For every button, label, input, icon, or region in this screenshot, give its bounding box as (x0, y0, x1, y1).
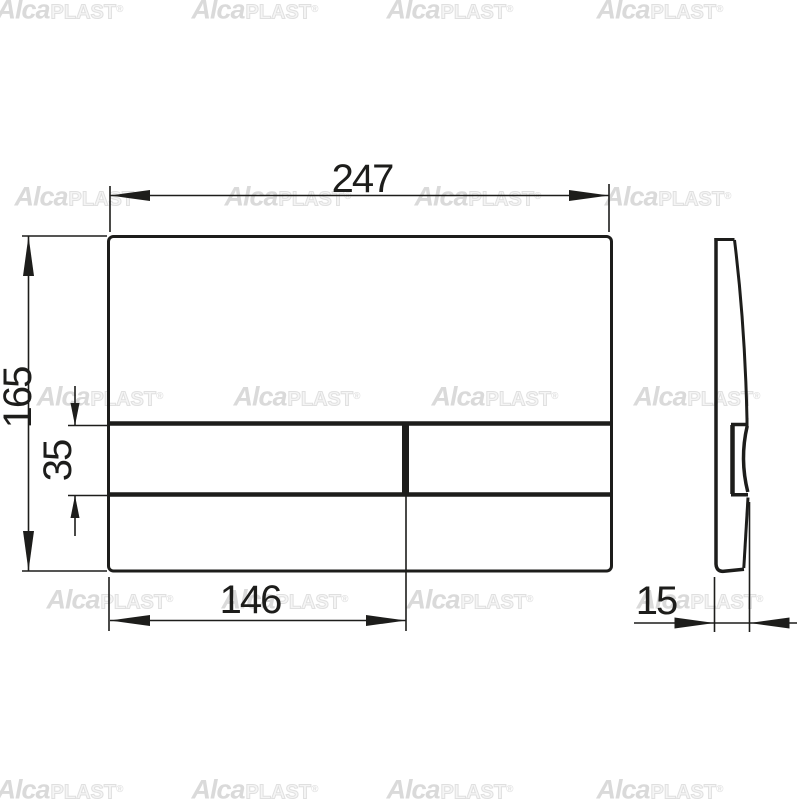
arrowhead-left-icon (110, 615, 150, 626)
overall-width-label: 247 (332, 157, 393, 201)
arrowhead-down-icon (71, 403, 80, 426)
arrowhead-right-icon (675, 618, 715, 629)
side-button-concave-face (743, 426, 747, 492)
overall-height-label: 165 (0, 367, 40, 428)
button-row-width-label: 146 (220, 578, 281, 622)
side-profile-front-curve (735, 240, 748, 420)
arrowhead-up-icon (23, 236, 34, 276)
side-view (714, 240, 748, 572)
plate-outline (109, 237, 612, 572)
button-row-height-label: 35 (36, 440, 80, 481)
front-view (109, 237, 612, 572)
arrowhead-left-icon (110, 190, 150, 201)
arrowhead-left-icon (750, 618, 790, 629)
plate-depth-label: 15 (636, 579, 677, 623)
side-profile-lower-front-edge (744, 498, 748, 569)
flush-plate-dimension-drawing: 247 165 35 146 15 (0, 0, 800, 800)
arrowhead-right-icon (569, 190, 609, 201)
arrowhead-down-icon (23, 531, 34, 571)
technical-drawing-canvas: AlcaPLAST®AlcaPLAST®AlcaPLAST®AlcaPLAST®… (0, 0, 800, 800)
arrowhead-up-icon (71, 496, 80, 519)
arrowhead-right-icon (366, 615, 406, 626)
